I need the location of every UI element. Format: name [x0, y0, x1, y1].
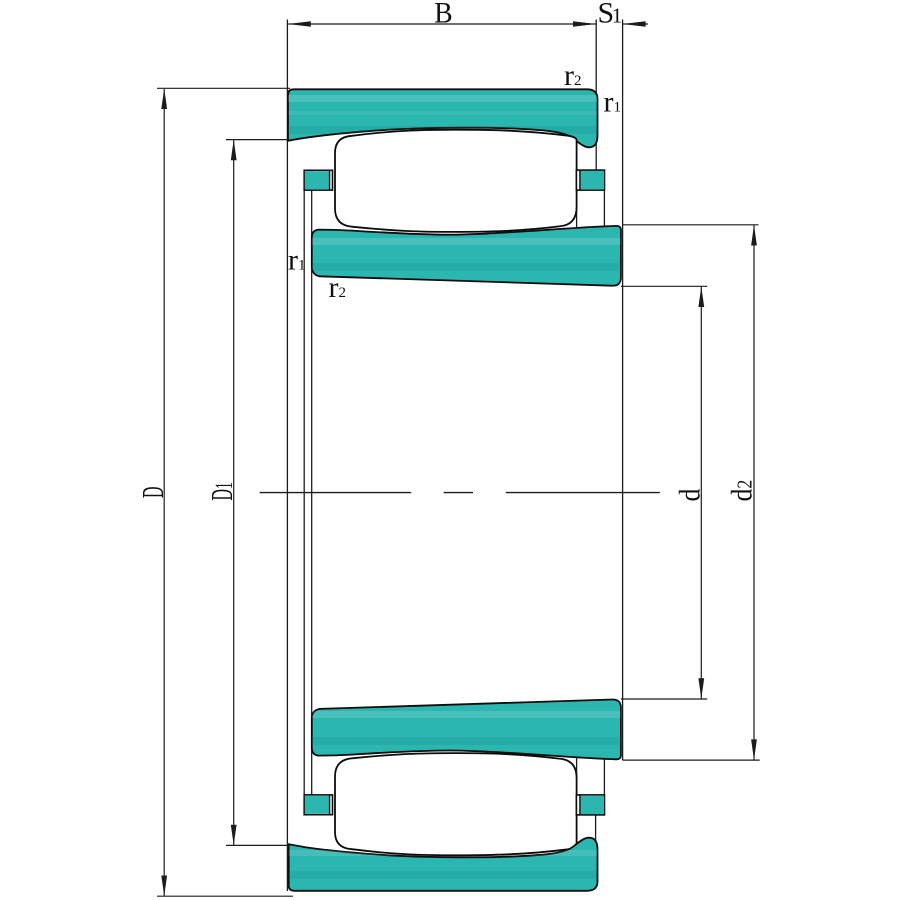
svg-text:B: B — [434, 0, 452, 30]
svg-text:D1: D1 — [206, 482, 240, 500]
svg-text:d: d — [674, 489, 707, 502]
svg-text:S1: S1 — [598, 0, 623, 30]
svg-text:D: D — [137, 486, 171, 498]
